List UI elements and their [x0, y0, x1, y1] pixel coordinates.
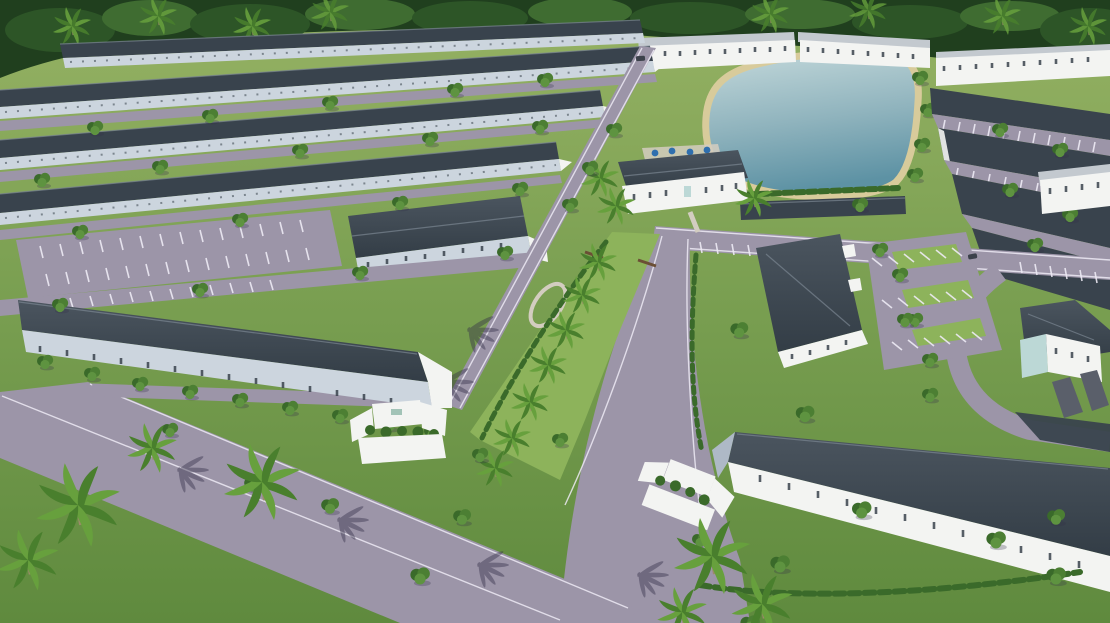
aerial-render — [0, 0, 1110, 623]
car — [636, 56, 645, 62]
east-white-building — [1038, 164, 1110, 214]
clubhouse-door — [684, 186, 691, 197]
